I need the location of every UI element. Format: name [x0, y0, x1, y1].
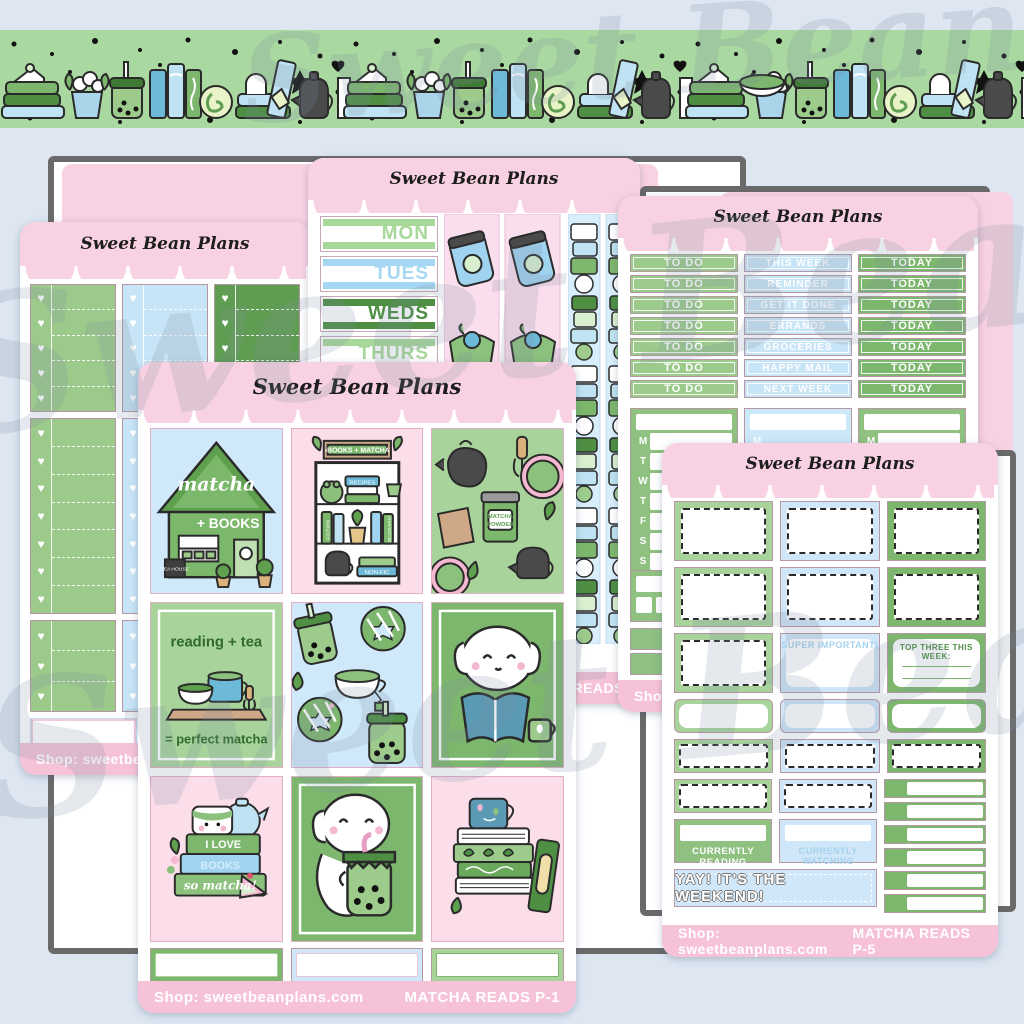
todo-label: TO DO: [630, 275, 738, 293]
matcha-donut-icon: [361, 607, 404, 650]
frog-icon: [320, 481, 342, 503]
weekday-letter: F: [636, 516, 650, 527]
heart-icon: [31, 651, 51, 681]
sticker-sheet-p1: Sweet Bean Plans matcha + BOOKS: [138, 362, 576, 1013]
plant-pot-icon: [349, 510, 365, 544]
blank-half-box: [30, 718, 137, 746]
mug-books-sticker: [431, 776, 564, 942]
sheet-header: Sweet Bean Plans: [138, 362, 576, 410]
week-label: REMINDER: [744, 275, 852, 293]
tile-grid: matcha + BOOKS TEA HOUSE: [150, 428, 564, 942]
weekend-label: YAY! IT'S THE WEEKEND!: [675, 870, 876, 906]
currently-reading-label: CURRENTLY READING: [675, 846, 771, 868]
whisk-icon: [244, 686, 255, 710]
mug-icon: [470, 799, 513, 829]
quarter-box: [674, 779, 772, 813]
puppy-boba-sticker: [291, 776, 424, 942]
washi-banner: [0, 30, 1024, 128]
sticker-sheet-p5: Sweet Bean Plans SUPER IMPORTANT! TOP TH…: [662, 443, 998, 957]
svg-text:so matcha!: so matcha!: [184, 879, 257, 893]
half-box-row: [150, 948, 564, 982]
quarter-box: [780, 699, 879, 733]
heart-icon: [31, 447, 51, 475]
matcha-donut-icon: [298, 698, 341, 741]
love-books-sticker: I LOVE BOOKS so matcha!: [150, 776, 283, 942]
svg-text:BIOGRAPHY: BIOGRAPHY: [387, 516, 392, 542]
half-box: [780, 501, 879, 561]
week-label: ERRANDS: [744, 317, 852, 335]
heart-icon: [123, 285, 143, 310]
shop-url: Shop: sweetbeanplans.com: [678, 925, 853, 957]
weekday-letter: S: [636, 556, 650, 567]
day-cover-mon: MON: [320, 216, 438, 252]
heart-icon: [31, 361, 51, 386]
svg-text:NON-FIC: NON-FIC: [364, 570, 389, 576]
currently-reading-box: CURRENTLY READING: [674, 819, 772, 863]
svg-text:reading + tea: reading + tea: [170, 634, 262, 650]
todo-label: TO DO: [630, 296, 738, 314]
checklist-row: [884, 848, 986, 867]
heart-icon: [31, 285, 51, 310]
teacup-icon: [387, 484, 401, 496]
tray-icon: [167, 710, 266, 720]
heart-icon: [31, 681, 51, 711]
heart-icon: [31, 558, 51, 586]
week-label: NEXT WEEK: [744, 380, 852, 398]
heart-icon: [123, 310, 143, 335]
checklist-row: [884, 825, 986, 844]
reading-tea-sticker: reading + tea = perfect matcha: [150, 602, 283, 768]
today-label: TODAY: [858, 317, 966, 335]
plant-pot-icon: [257, 559, 273, 587]
todo-label: TO DO: [630, 380, 738, 398]
boba-pattern-sticker: [291, 602, 424, 768]
top-three-label: TOP THREE THIS WEEK:: [888, 643, 985, 661]
half-box: [674, 633, 773, 693]
sheet-header: Sweet Bean Plans: [618, 196, 978, 238]
matcha-house-sticker: matcha + BOOKS TEA HOUSE: [150, 428, 283, 594]
weekday-letter: M: [636, 436, 650, 447]
todo-column: TO DO TO DO TO DO TO DO TO DO TO DO TO D…: [630, 254, 738, 398]
today-label: TODAY: [858, 359, 966, 377]
todo-label: TO DO: [630, 338, 738, 356]
currently-watching-label: CURRENTLY WATCHING: [780, 846, 876, 866]
brand-logo: Sweet Bean Plans: [253, 374, 462, 399]
plant-pot-icon: [216, 564, 230, 587]
svg-text:TEA HOUSE: TEA HOUSE: [161, 566, 190, 572]
svg-text:matcha: matcha: [177, 473, 255, 495]
checklist-row: [884, 894, 986, 913]
mug-icon: [529, 720, 555, 742]
teacup-icon: [335, 670, 384, 711]
heart-checklist: [30, 418, 116, 614]
heart-icon: [31, 310, 51, 335]
heart-icon: [31, 621, 51, 651]
sheet-header: Sweet Bean Plans: [308, 158, 640, 200]
svg-text:POWDER: POWDER: [487, 522, 514, 528]
day-cover-column: MON TUES WEDS THURS: [320, 216, 438, 376]
puppy-reading-sticker: [431, 602, 564, 768]
top-three-box: TOP THREE THIS WEEK:: [887, 633, 986, 693]
heart-icon: [215, 285, 235, 310]
blank-half-box: [150, 948, 283, 982]
day-cover-tues: TUES: [320, 256, 438, 292]
day-cover-weds: WEDS: [320, 296, 438, 332]
paper-bag-icon: [438, 508, 474, 548]
weekday-letter: T: [636, 496, 650, 507]
todo-label: TO DO: [630, 254, 738, 272]
banner-illustration: [0, 30, 1024, 128]
brand-logo: Sweet Bean Plans: [746, 454, 915, 474]
boba-jar-icon: [291, 602, 340, 666]
sheet-header: Sweet Bean Plans: [20, 222, 310, 266]
cup-icon: [183, 552, 192, 559]
svg-text:+ BOOKS: + BOOKS: [197, 515, 260, 531]
today-label: TODAY: [858, 296, 966, 314]
heart-icon: [123, 335, 143, 360]
matcha-bowl-icon: [521, 455, 564, 498]
half-box: [887, 501, 986, 561]
heart-icon: [215, 335, 235, 360]
kettle-icon: [436, 441, 486, 487]
today-label: TODAY: [858, 338, 966, 356]
heart-icon: [31, 530, 51, 558]
heart-icon: [215, 310, 235, 335]
heart-checklist: [30, 284, 116, 412]
checklist-row: [884, 802, 986, 821]
matcha-pattern-sticker: MATCHA POWDER: [431, 428, 564, 594]
half-box: [780, 567, 879, 627]
today-label: TODAY: [858, 254, 966, 272]
leaf-icon: [292, 672, 302, 690]
brand-logo: Sweet Bean Plans: [714, 207, 883, 227]
svg-text:= perfect matcha: = perfect matcha: [165, 731, 268, 746]
svg-text:FICTION: FICTION: [325, 519, 331, 539]
quarter-box: [674, 699, 773, 733]
kit-label: MATCHA READS P-5: [853, 925, 982, 957]
heart-icon: [31, 386, 51, 411]
half-box: [674, 501, 773, 561]
matcha-bowl-icon: [431, 557, 470, 594]
svg-text:BOOKS: BOOKS: [200, 860, 240, 872]
heart-icon: [31, 335, 51, 360]
puppy-head: [321, 795, 388, 854]
open-book-icon: [462, 693, 529, 741]
leaf-icon: [171, 838, 179, 854]
super-important-box: SUPER IMPORTANT!: [780, 633, 879, 693]
svg-text:I LOVE: I LOVE: [205, 839, 241, 851]
weekday-letter: S: [636, 536, 650, 547]
todo-label: TO DO: [630, 359, 738, 377]
quarter-box: [779, 779, 877, 813]
svg-text:RECIPES: RECIPES: [349, 480, 375, 486]
p5-checklist-column: [884, 779, 986, 917]
heart-checklist: [30, 620, 116, 712]
mug-icon: [208, 672, 247, 702]
puppy-head: [462, 627, 533, 690]
weekend-banner: YAY! IT'S THE WEEKEND!: [674, 869, 877, 907]
bookshelf-sticker: ›BOOKS + MATCHA RECIPES FICTION BIOGRAPH…: [291, 428, 424, 594]
half-box: [887, 567, 986, 627]
book-icon: [458, 828, 529, 844]
blank-half-box: [431, 948, 564, 982]
super-important-label: SUPER IMPORTANT!: [781, 640, 878, 650]
leaf-icon: [452, 898, 461, 914]
week-label: GET IT DONE: [744, 296, 852, 314]
weekday-letter: T: [636, 456, 650, 467]
todo-label: TO DO: [630, 317, 738, 335]
p5-bottom-left: CURRENTLY READING CURRENTLY WATCHING YAY…: [674, 779, 877, 917]
sheet-header: Sweet Bean Plans: [662, 443, 998, 485]
quarter-box: [887, 739, 986, 773]
today-label: TODAY: [858, 275, 966, 293]
blank-half-box: [291, 948, 424, 982]
checklist-row: [884, 871, 986, 890]
bowl-icon: [179, 684, 213, 704]
week-column: THIS WEEK REMINDER GET IT DONE ERRANDS G…: [744, 254, 852, 398]
week-label: THIS WEEK: [744, 254, 852, 272]
svg-text:›BOOKS + MATCHA: ›BOOKS + MATCHA: [325, 448, 390, 455]
weekday-letter: W: [636, 476, 650, 487]
svg-text:MATCHA: MATCHA: [488, 514, 514, 520]
puppy-ear: [313, 811, 326, 843]
leaf-icon: [545, 502, 555, 520]
sheet-footer: Shop: sweetbeanplans.com MATCHA READS P-…: [138, 981, 576, 1013]
boba-jar-icon: [367, 702, 407, 763]
heart-icon: [31, 585, 51, 613]
label-columns: TO DO TO DO TO DO TO DO TO DO TO DO TO D…: [630, 254, 966, 398]
brand-logo: Sweet Bean Plans: [81, 234, 250, 254]
product-photo: { "brand": {"logo": "Sweet Bean Plans", …: [0, 0, 1024, 1024]
quarter-box: [887, 699, 986, 733]
today-column: TODAY TODAY TODAY TODAY TODAY TODAY TODA…: [858, 254, 966, 398]
cat-cup-icon: [193, 807, 233, 835]
heart-icon: [31, 474, 51, 502]
teapot-icon: [510, 548, 553, 579]
kit-label: MATCHA READS P-1: [404, 989, 560, 1006]
week-label: HAPPY MAIL: [744, 359, 852, 377]
currently-watching-box: CURRENTLY WATCHING: [779, 819, 877, 863]
teapot-icon: [325, 552, 352, 576]
today-label: TODAY: [858, 380, 966, 398]
quarter-box: [674, 739, 773, 773]
leaf-icon: [312, 437, 320, 451]
heart-icon: [31, 419, 51, 447]
quarter-box: [780, 739, 879, 773]
week-label: GROCERIES: [744, 338, 852, 356]
sheet-footer: Shop: sweetbeanplans.com MATCHA READS P-…: [662, 925, 998, 957]
heart-icon: [31, 502, 51, 530]
p5-grid: SUPER IMPORTANT! TOP THREE THIS WEEK:: [674, 501, 986, 917]
checklist-row: [884, 779, 986, 798]
shop-url: Shop: sweetbeanplans.com: [154, 989, 364, 1006]
half-box: [674, 567, 773, 627]
brand-logo: Sweet Bean Plans: [390, 169, 559, 189]
